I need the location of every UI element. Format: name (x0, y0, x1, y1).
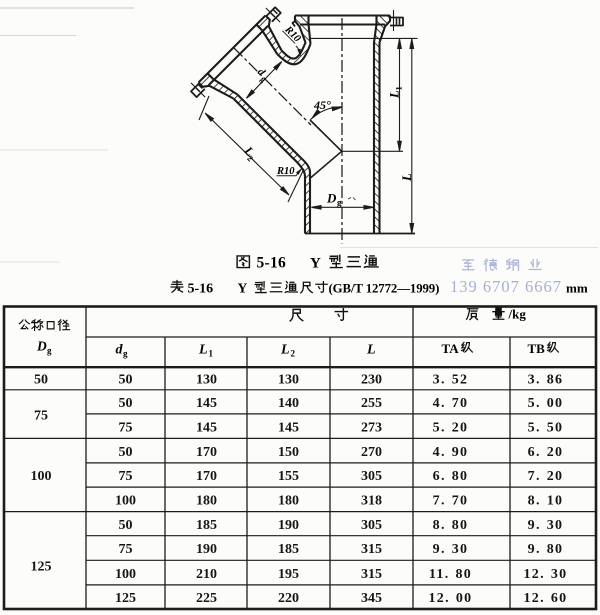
svg-text:345: 345 (361, 591, 382, 606)
svg-text:100: 100 (115, 567, 136, 582)
svg-text:5-16: 5-16 (257, 255, 287, 272)
svg-text:50: 50 (119, 396, 133, 411)
svg-text:L: L (400, 173, 414, 182)
svg-text:185: 185 (196, 518, 217, 533)
svg-text:TB: TB (528, 341, 546, 356)
svg-text:50: 50 (119, 373, 133, 388)
svg-text:mm: mm (566, 281, 588, 296)
svg-text:45°: 45° (313, 98, 331, 112)
svg-text:/kg: /kg (508, 307, 527, 322)
svg-text:50: 50 (119, 518, 133, 533)
svg-text:50: 50 (119, 445, 133, 460)
svg-text:220: 220 (278, 591, 299, 606)
svg-text:225: 225 (196, 591, 217, 606)
svg-text:TA: TA (442, 341, 460, 356)
svg-text:75: 75 (119, 469, 133, 484)
svg-text:150: 150 (278, 445, 299, 460)
svg-text:180: 180 (278, 494, 299, 509)
svg-text:75: 75 (119, 542, 133, 557)
svg-text:7. 20: 7. 20 (528, 469, 564, 484)
svg-text:145: 145 (278, 420, 299, 435)
svg-text:11. 80: 11. 80 (429, 567, 472, 582)
svg-text:5. 00: 5. 00 (528, 396, 564, 411)
svg-text:125: 125 (115, 591, 136, 606)
svg-text:Y: Y (310, 256, 321, 272)
svg-text:75: 75 (119, 420, 133, 435)
svg-text:130: 130 (278, 373, 299, 388)
svg-text:50: 50 (34, 373, 48, 388)
svg-text:g: g (123, 349, 128, 359)
svg-text:170: 170 (196, 445, 217, 460)
svg-text:139 6707 6667: 139 6707 6667 (450, 277, 562, 296)
svg-text:170: 170 (196, 469, 217, 484)
svg-text:75: 75 (34, 408, 48, 423)
svg-text:g: g (337, 198, 342, 208)
svg-text:L: L (366, 343, 376, 358)
svg-text:5. 20: 5. 20 (433, 420, 469, 435)
svg-text:230: 230 (361, 373, 382, 388)
svg-text:5-16: 5-16 (188, 282, 214, 297)
svg-text:210: 210 (196, 567, 217, 582)
svg-text:3. 52: 3. 52 (433, 373, 469, 388)
svg-text:305: 305 (361, 518, 382, 533)
svg-text:255: 255 (361, 396, 382, 411)
svg-text:155: 155 (278, 469, 299, 484)
svg-text:185: 185 (278, 542, 299, 557)
svg-text:3. 86: 3. 86 (528, 373, 564, 388)
svg-text:318: 318 (361, 494, 382, 509)
svg-text:D: D (36, 339, 47, 354)
svg-text:315: 315 (361, 567, 382, 582)
svg-text:6. 20: 6. 20 (528, 445, 564, 460)
svg-text:180: 180 (196, 494, 217, 509)
svg-text:1: 1 (394, 86, 404, 90)
svg-text:305: 305 (361, 469, 382, 484)
svg-text:L: L (280, 343, 290, 358)
svg-text:270: 270 (361, 445, 382, 460)
svg-text:100: 100 (31, 469, 52, 484)
svg-text:145: 145 (196, 396, 217, 411)
svg-text:D: D (326, 191, 337, 206)
svg-text:4. 90: 4. 90 (433, 445, 469, 460)
svg-text:100: 100 (115, 494, 136, 509)
svg-text:315: 315 (361, 542, 382, 557)
svg-text:9. 80: 9. 80 (528, 542, 564, 557)
svg-text:L: L (198, 343, 208, 358)
svg-text:125: 125 (31, 560, 52, 575)
svg-text:273: 273 (361, 420, 382, 435)
svg-text:7. 70: 7. 70 (433, 494, 469, 509)
svg-text:12. 00: 12. 00 (429, 591, 473, 606)
svg-text:1: 1 (209, 349, 214, 359)
svg-text:190: 190 (278, 518, 299, 533)
svg-text:12. 30: 12. 30 (524, 567, 568, 582)
svg-text:Y: Y (238, 281, 248, 296)
svg-text:2: 2 (291, 349, 296, 359)
svg-text:6. 80: 6. 80 (433, 469, 469, 484)
svg-text:140: 140 (278, 396, 299, 411)
svg-text:g: g (47, 346, 52, 356)
svg-text:(GB/T 12772—1999): (GB/T 12772—1999) (329, 282, 440, 296)
svg-text:8. 10: 8. 10 (528, 494, 564, 509)
svg-text:5. 50: 5. 50 (528, 420, 564, 435)
svg-text:9. 30: 9. 30 (528, 518, 564, 533)
svg-text:8. 80: 8. 80 (433, 518, 469, 533)
svg-text:12. 60: 12. 60 (524, 591, 568, 606)
svg-text:190: 190 (196, 542, 217, 557)
svg-text:9. 30: 9. 30 (433, 542, 469, 557)
svg-text:195: 195 (278, 567, 299, 582)
svg-text:4. 70: 4. 70 (433, 396, 469, 411)
svg-text:145: 145 (196, 420, 217, 435)
svg-text:130: 130 (196, 373, 217, 388)
